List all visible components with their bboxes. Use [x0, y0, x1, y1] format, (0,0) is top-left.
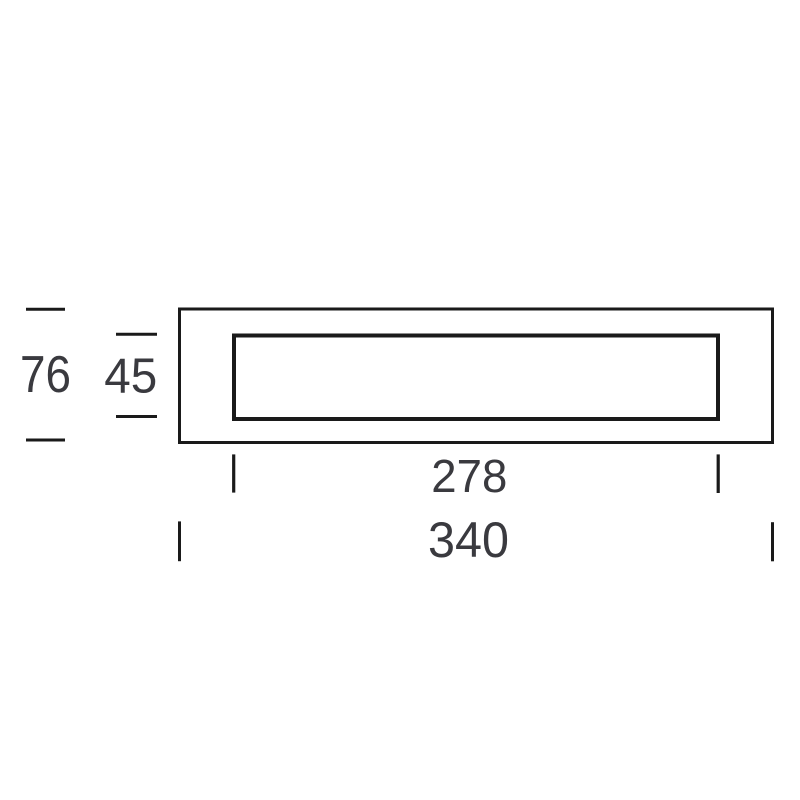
svg-text:278: 278 [431, 450, 507, 502]
svg-text:45: 45 [104, 350, 157, 404]
svg-text:76: 76 [20, 346, 71, 404]
svg-text:340: 340 [428, 512, 509, 568]
